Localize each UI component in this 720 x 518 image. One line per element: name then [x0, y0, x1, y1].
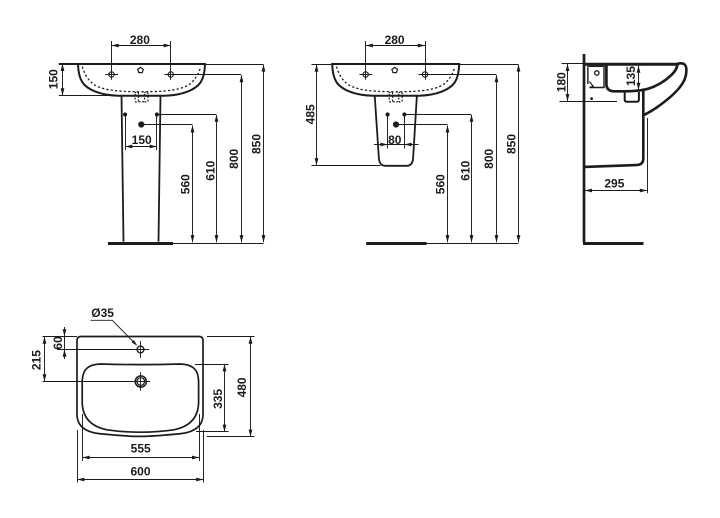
svg-text:215: 215	[30, 350, 44, 370]
svg-text:610: 610	[203, 160, 217, 180]
svg-text:850: 850	[504, 134, 518, 154]
svg-text:610: 610	[458, 160, 472, 180]
svg-text:800: 800	[482, 148, 496, 168]
svg-text:480: 480	[235, 377, 249, 397]
svg-text:60: 60	[51, 336, 65, 350]
svg-text:295: 295	[604, 176, 624, 190]
svg-text:135: 135	[624, 66, 638, 86]
svg-text:180: 180	[555, 72, 569, 92]
svg-text:335: 335	[211, 389, 225, 409]
svg-text:80: 80	[388, 133, 402, 147]
svg-text:600: 600	[130, 465, 150, 479]
svg-text:150: 150	[46, 69, 60, 89]
svg-text:150: 150	[132, 133, 152, 147]
svg-text:560: 560	[178, 174, 192, 194]
svg-text:280: 280	[385, 33, 405, 47]
svg-text:280: 280	[130, 33, 150, 47]
svg-text:Ø35: Ø35	[91, 306, 114, 320]
svg-text:800: 800	[227, 148, 241, 168]
svg-text:850: 850	[249, 134, 263, 154]
svg-text:560: 560	[433, 174, 447, 194]
svg-text:485: 485	[303, 104, 317, 124]
svg-text:555: 555	[131, 441, 151, 455]
